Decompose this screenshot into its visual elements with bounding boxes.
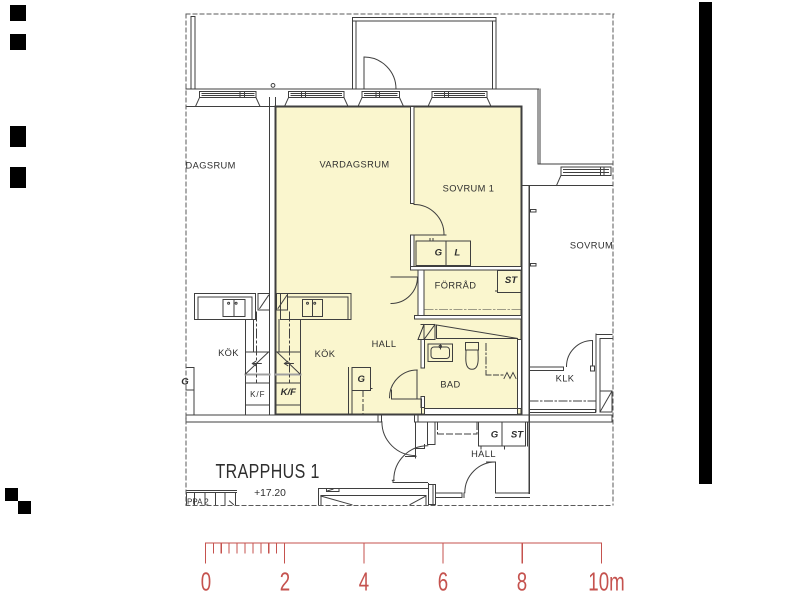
svg-text:VARDAGSRUM: VARDAGSRUM [320,160,390,170]
svg-text:BAD: BAD [440,380,460,390]
svg-text:KÖK: KÖK [218,348,239,358]
svg-text:6: 6 [438,566,448,596]
svg-text:KLK: KLK [556,374,575,384]
svg-text:KÖK: KÖK [315,349,336,359]
svg-text:FÖRRÅD: FÖRRÅD [435,281,477,291]
svg-text:L: L [454,248,460,259]
svg-text:8: 8 [517,566,527,596]
svg-text:TRAPPHUS 1: TRAPPHUS 1 [216,459,320,482]
svg-text:G: G [181,377,189,388]
svg-text:10m: 10m [588,566,624,596]
svg-text:2: 2 [280,566,290,596]
svg-text:4: 4 [359,566,369,596]
svg-text:G: G [435,248,443,259]
svg-text:SOVRUM 1: SOVRUM 1 [443,184,495,194]
svg-text:HALL: HALL [372,339,397,349]
svg-text:G: G [357,374,365,385]
svg-text:0: 0 [201,566,211,596]
svg-text:HALL: HALL [471,449,496,459]
svg-text:K/F: K/F [250,390,265,399]
svg-text:G: G [491,430,499,441]
svg-text:ST: ST [511,430,524,441]
svg-text:+17.20: +17.20 [254,488,286,499]
svg-text:SOVRUM: SOVRUM [570,241,613,251]
svg-text:DAGSRUM: DAGSRUM [186,161,236,171]
svg-text:K/F: K/F [281,387,298,398]
svg-text:ST: ST [505,275,518,286]
